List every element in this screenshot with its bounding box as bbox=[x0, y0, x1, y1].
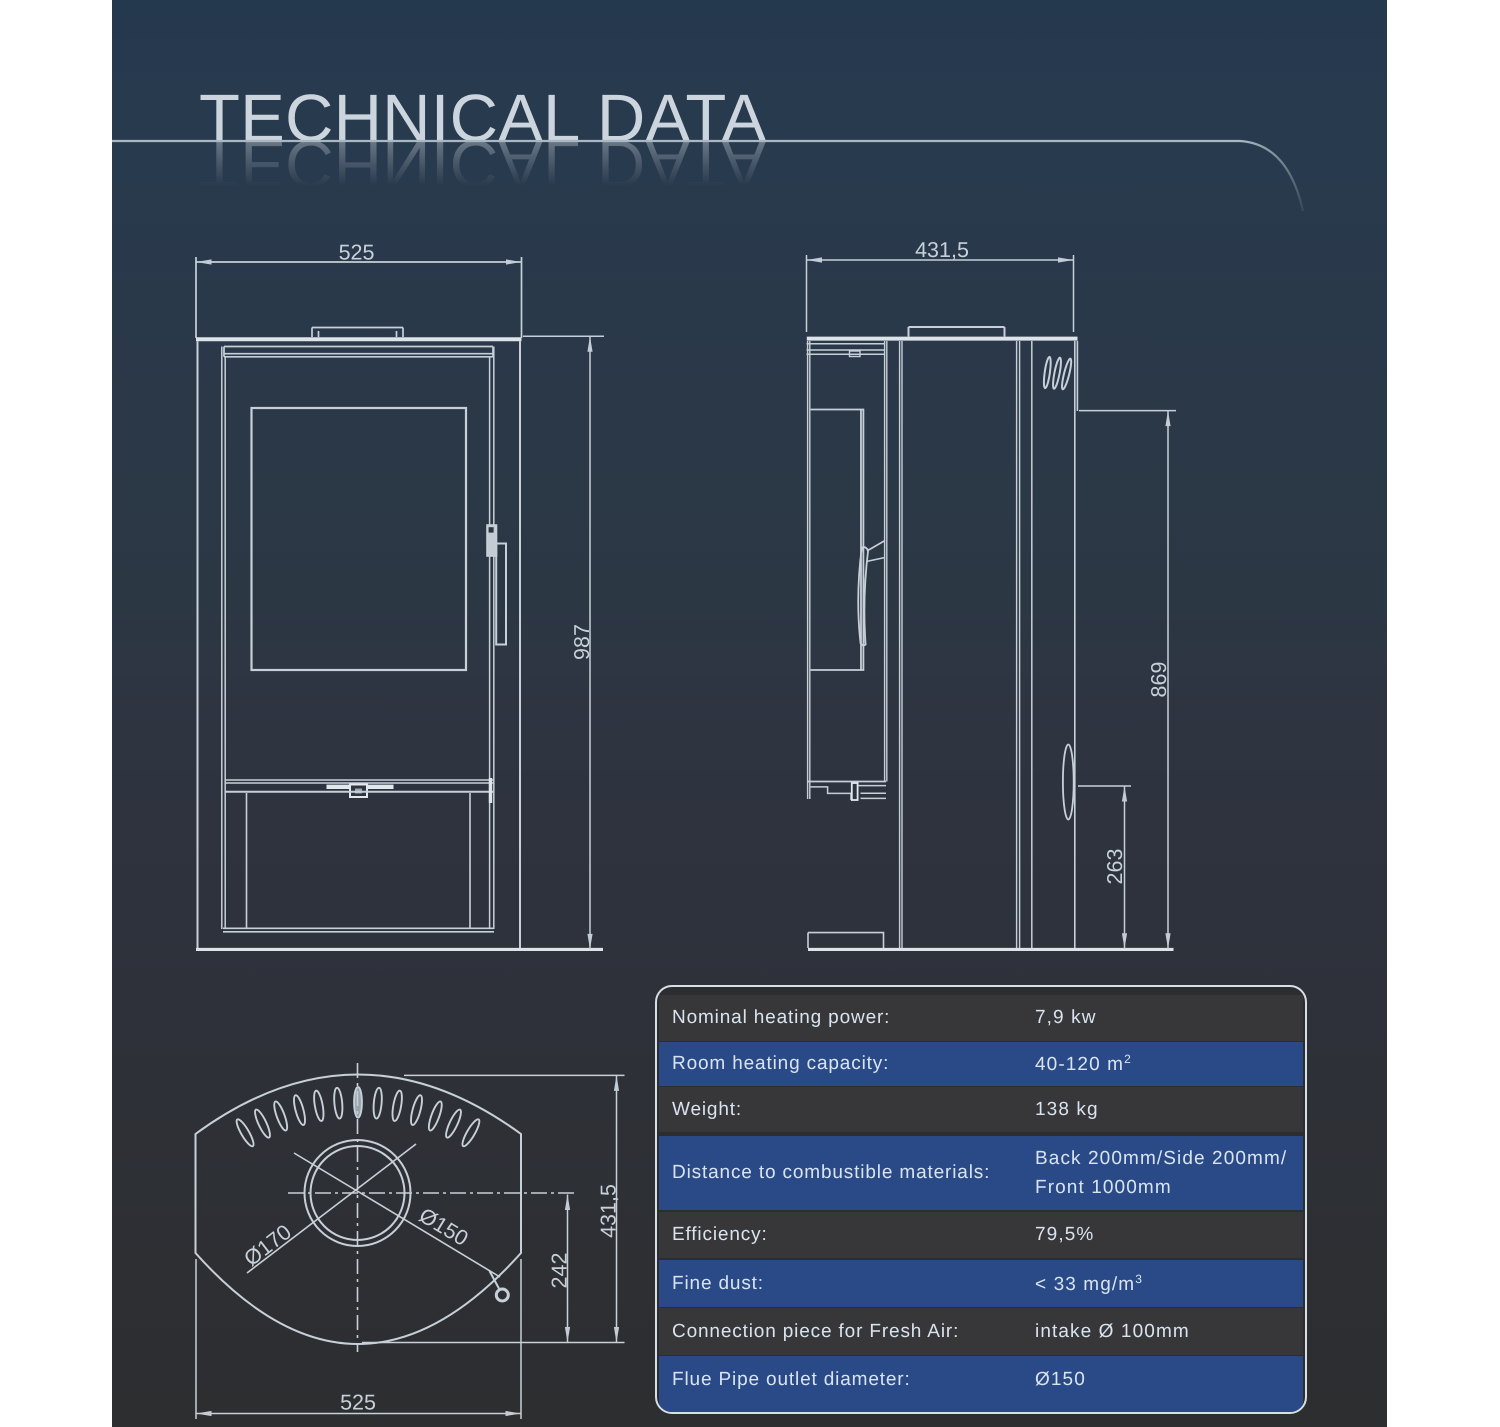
svg-text:242: 242 bbox=[548, 1253, 572, 1289]
svg-text:263: 263 bbox=[1103, 849, 1127, 885]
svg-text:869: 869 bbox=[1147, 662, 1171, 698]
svg-text:431,5: 431,5 bbox=[915, 238, 969, 262]
svg-text:Ø170: Ø170 bbox=[240, 1220, 296, 1271]
svg-text:987: 987 bbox=[570, 624, 594, 660]
svg-text:525: 525 bbox=[339, 241, 375, 265]
svg-text:525: 525 bbox=[340, 1391, 376, 1415]
svg-text:431,5: 431,5 bbox=[597, 1184, 621, 1238]
